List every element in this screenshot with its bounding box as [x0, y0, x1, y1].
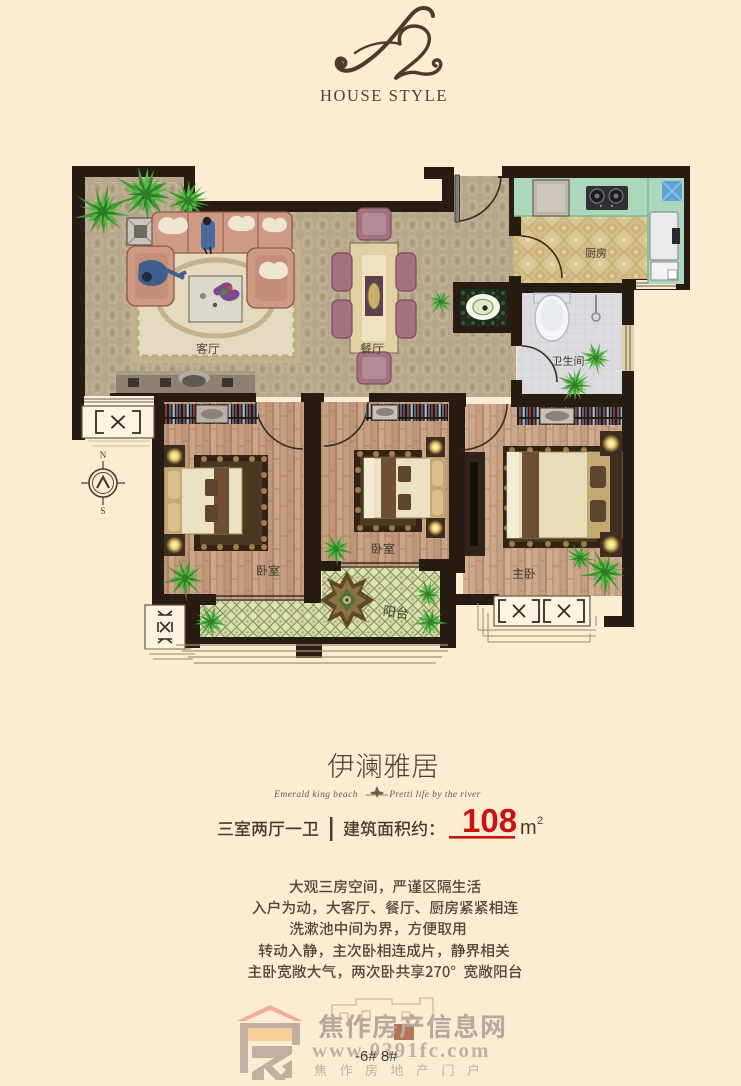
svg-text:N: N — [100, 450, 107, 460]
svg-text:-6# 8#: -6# 8# — [355, 1048, 398, 1065]
svg-text:HOUSE STYLE: HOUSE STYLE — [320, 86, 448, 105]
svg-text:Emerald king beach: Emerald king beach — [273, 790, 358, 800]
svg-text:2: 2 — [537, 815, 543, 827]
svg-text:Pretti life by the river: Pretti life by the river — [388, 789, 481, 800]
svg-text:S: S — [100, 506, 105, 516]
svg-text:108: 108 — [462, 802, 517, 839]
svg-text:m: m — [520, 817, 537, 839]
svg-text:www.0391fc.com: www.0391fc.com — [312, 1038, 490, 1062]
